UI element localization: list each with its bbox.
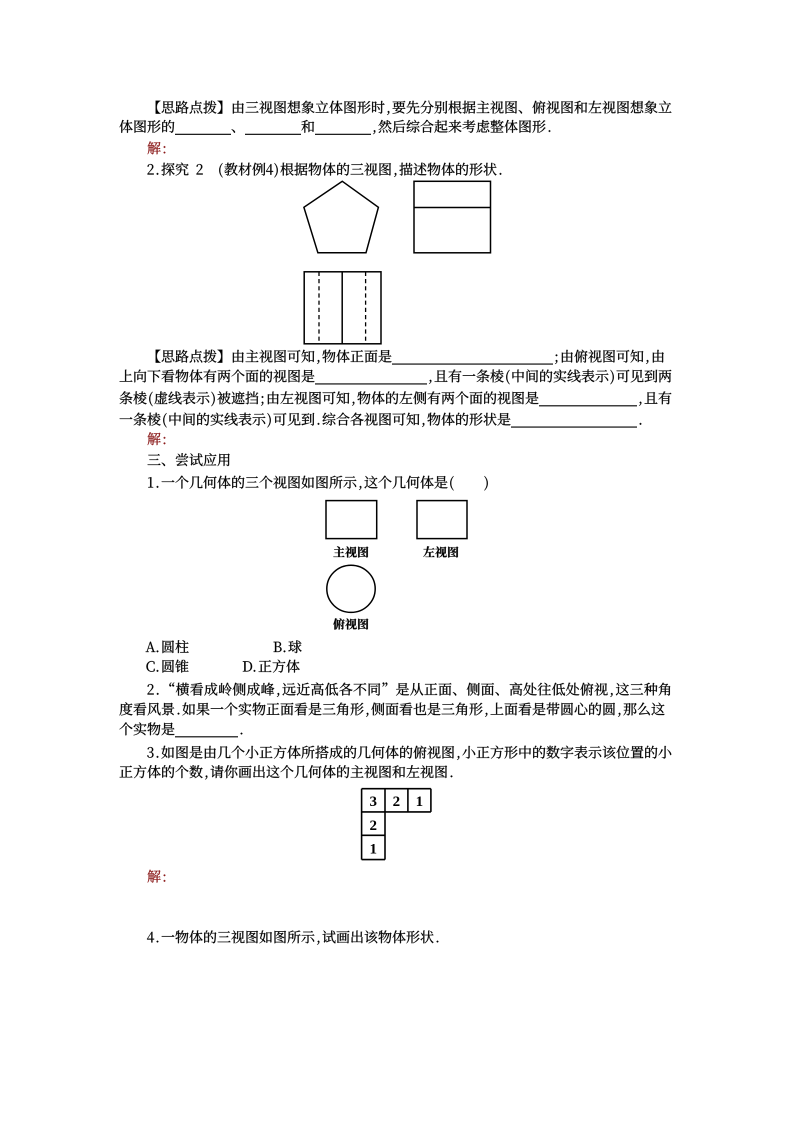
svg-text:1: 1 [370, 842, 378, 858]
svg-text:3: 3 [370, 794, 378, 810]
svg-text:2: 2 [393, 794, 401, 810]
svg-text:1: 1 [416, 794, 424, 810]
svg-text:2: 2 [370, 818, 378, 834]
